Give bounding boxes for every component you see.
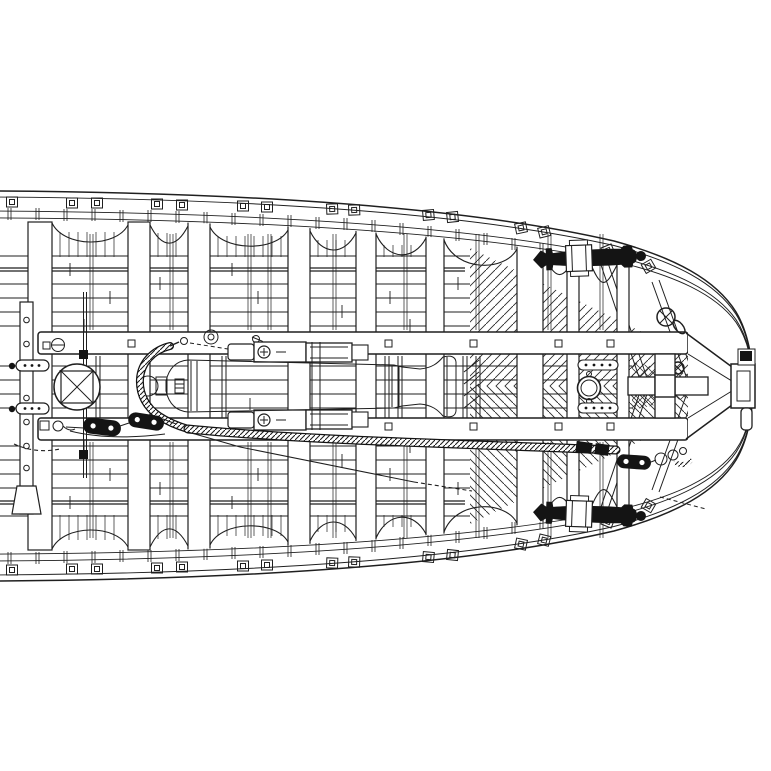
pivot-deck-fittings bbox=[9, 292, 100, 514]
cleat-base bbox=[641, 259, 656, 273]
waterway-arch bbox=[210, 227, 288, 246]
waterway-tick bbox=[484, 233, 487, 245]
waterway-tick bbox=[512, 238, 515, 250]
cleat-base bbox=[67, 198, 78, 208]
cleat bbox=[7, 197, 18, 207]
cleat-base bbox=[238, 201, 249, 211]
waterway-tick bbox=[372, 220, 375, 232]
cleat-base bbox=[92, 198, 103, 208]
deck-beam bbox=[426, 222, 444, 550]
waterway-tick bbox=[456, 229, 459, 241]
cleat bbox=[238, 201, 249, 211]
stem-cap-block bbox=[740, 351, 752, 361]
waterway-tick bbox=[120, 210, 123, 222]
thin-frame bbox=[170, 234, 173, 330]
thin-frame bbox=[268, 234, 271, 330]
waterway-arch bbox=[376, 234, 426, 255]
cleat-base bbox=[262, 202, 273, 212]
deck-beam bbox=[288, 222, 310, 550]
cleat-base bbox=[177, 200, 188, 210]
waterway-arch bbox=[150, 225, 188, 243]
training-slot bbox=[578, 360, 618, 370]
thin-frame bbox=[248, 234, 251, 330]
thin-frame bbox=[404, 234, 407, 330]
stem-roller bbox=[741, 408, 752, 430]
cleat bbox=[67, 198, 78, 208]
waterway-tick bbox=[344, 218, 347, 230]
scanned-plan-page bbox=[0, 0, 771, 771]
thin-frame bbox=[90, 234, 93, 330]
rope-seizing bbox=[575, 441, 592, 454]
cleat bbox=[92, 198, 103, 208]
deck-beam bbox=[356, 222, 376, 550]
gunboat-deck-plan bbox=[0, 0, 771, 771]
cleat bbox=[641, 259, 656, 273]
waterway-tick bbox=[288, 215, 291, 227]
thin-frame bbox=[333, 234, 336, 330]
deck-beam bbox=[617, 222, 629, 550]
deck-beam bbox=[517, 222, 543, 550]
cleat bbox=[262, 202, 273, 212]
waterway-tick bbox=[64, 209, 67, 221]
training-slot bbox=[578, 403, 618, 413]
cleat-base bbox=[7, 197, 18, 207]
cleat bbox=[177, 200, 188, 210]
